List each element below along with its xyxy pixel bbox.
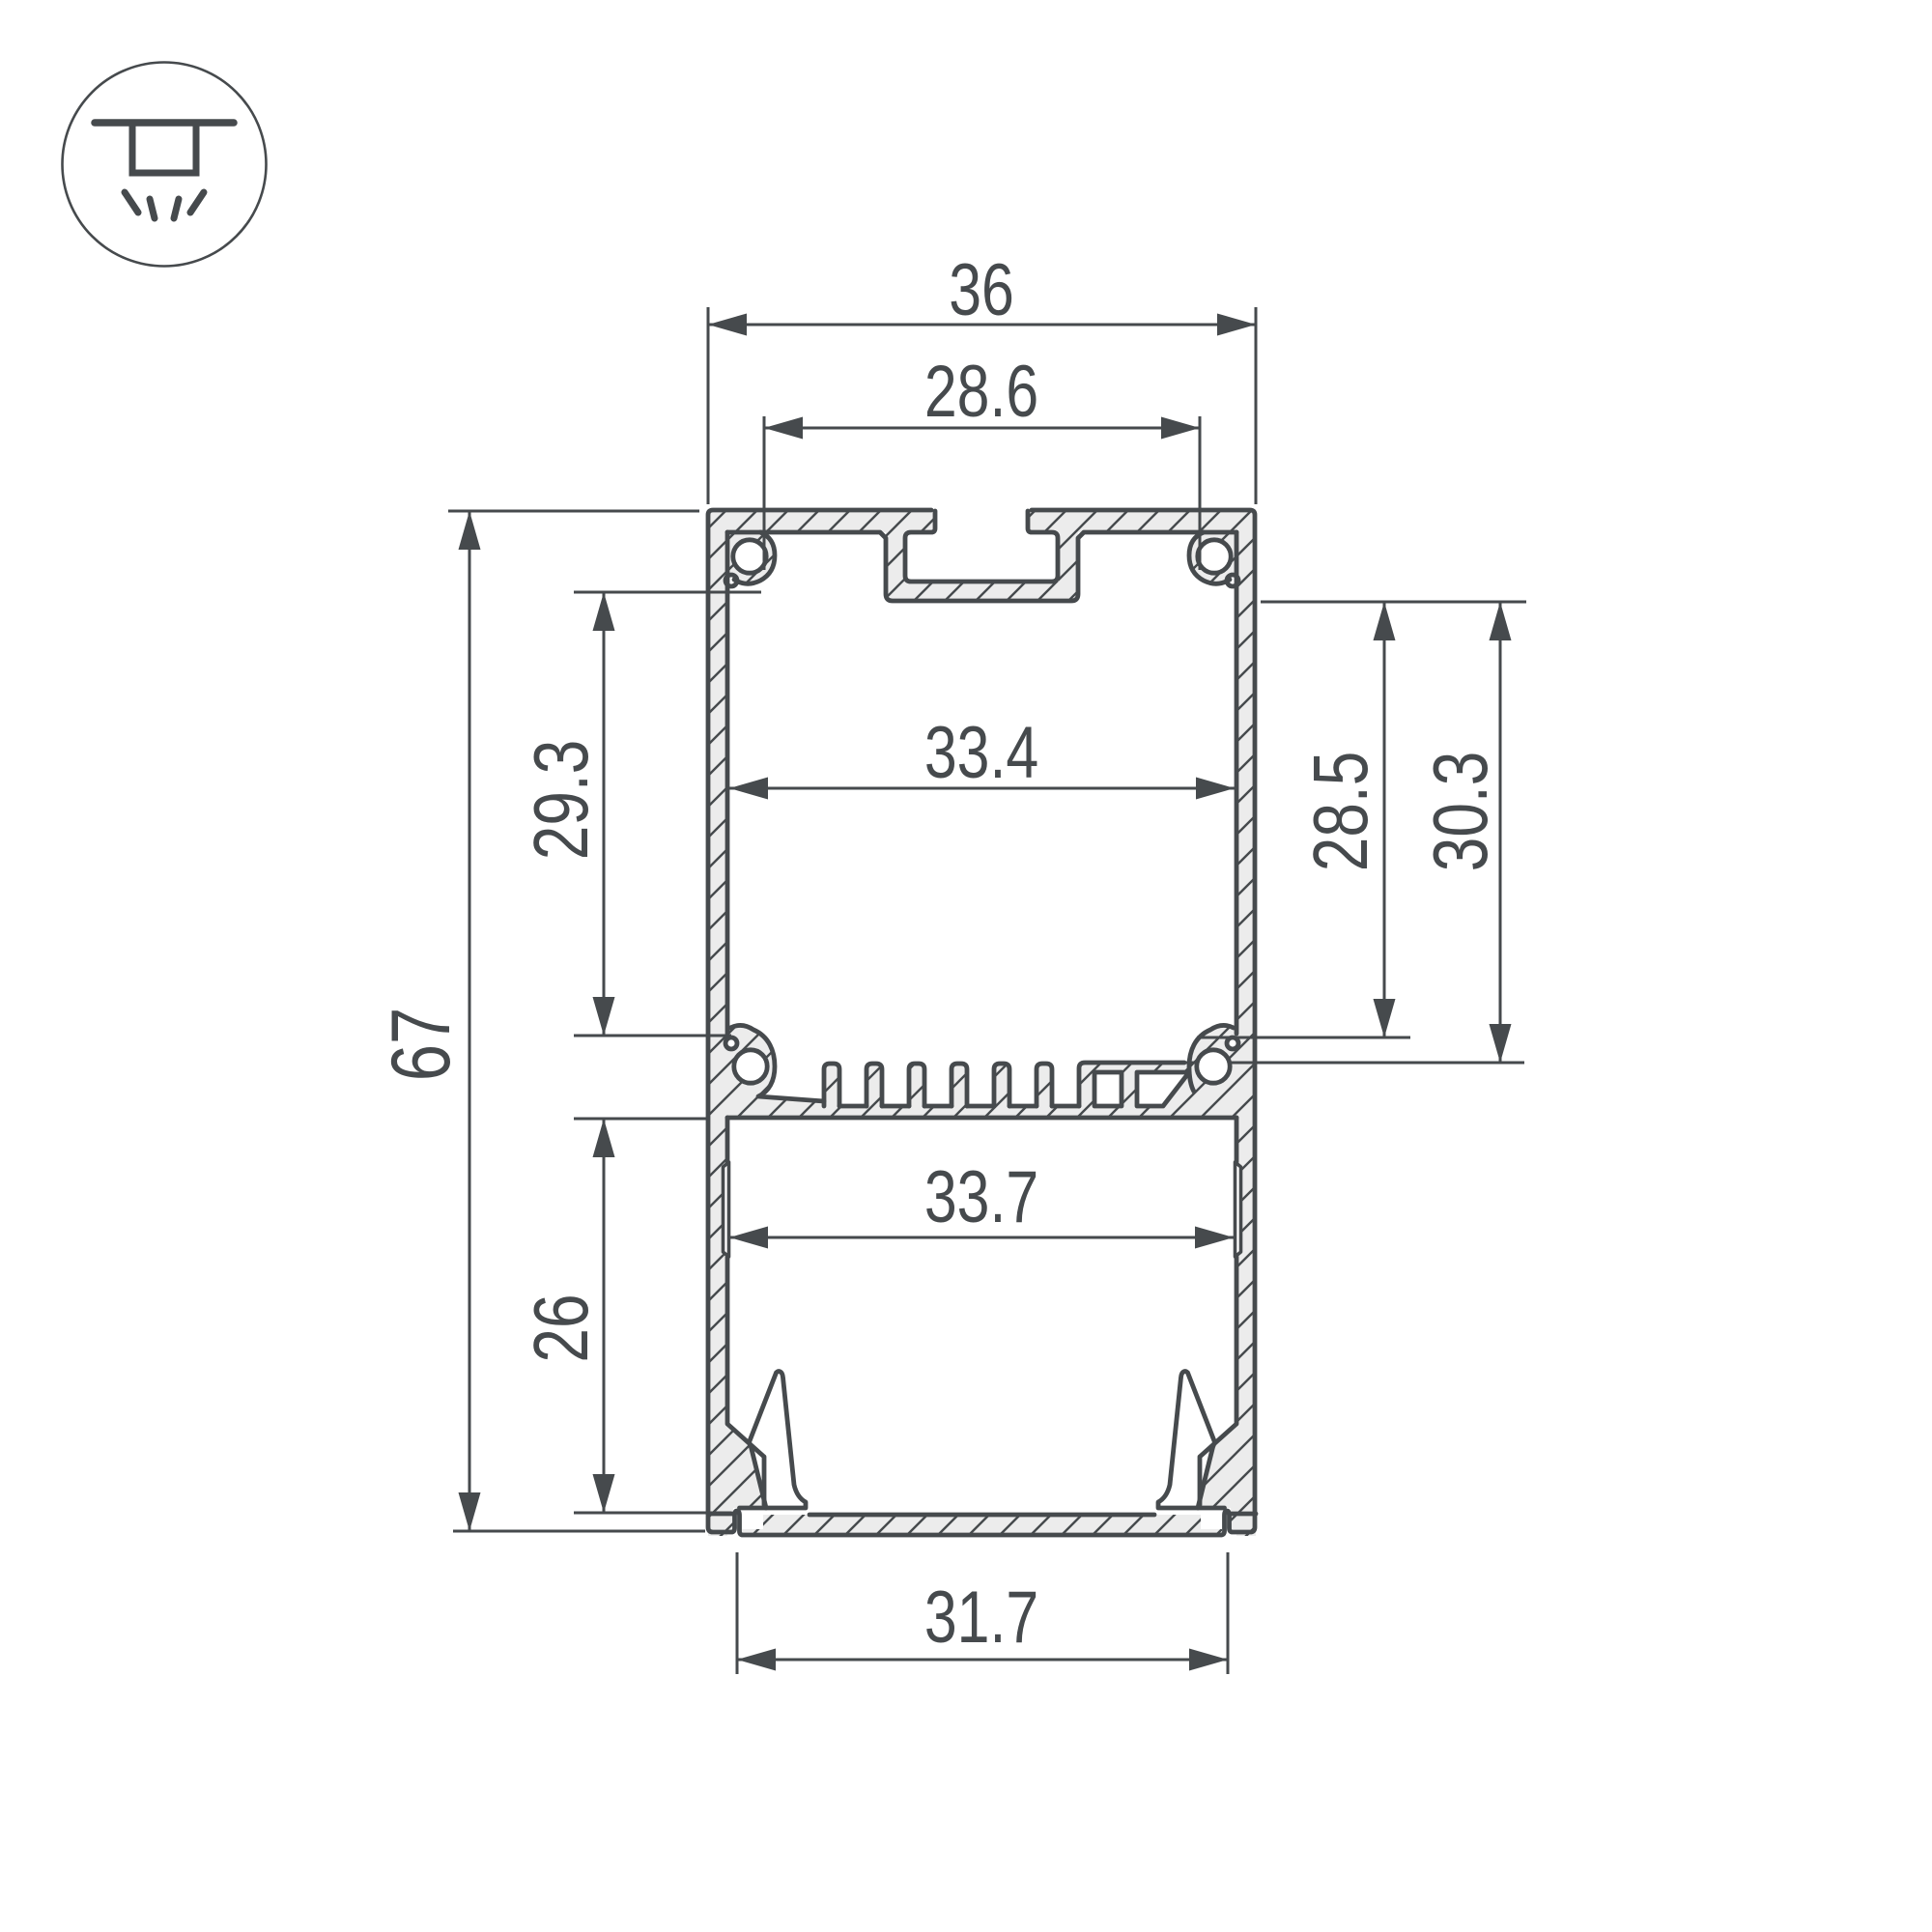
svg-text:36: 36 (949, 249, 1014, 331)
svg-text:30.3: 30.3 (1417, 752, 1503, 872)
svg-text:29.3: 29.3 (518, 740, 604, 861)
svg-text:33.4: 33.4 (924, 712, 1038, 794)
svg-text:28.6: 28.6 (924, 351, 1038, 433)
svg-text:33.7: 33.7 (924, 1156, 1038, 1238)
svg-text:67: 67 (375, 1008, 468, 1082)
svg-text:28.5: 28.5 (1297, 752, 1383, 872)
svg-text:26: 26 (518, 1293, 604, 1362)
svg-text:31.7: 31.7 (924, 1577, 1038, 1659)
